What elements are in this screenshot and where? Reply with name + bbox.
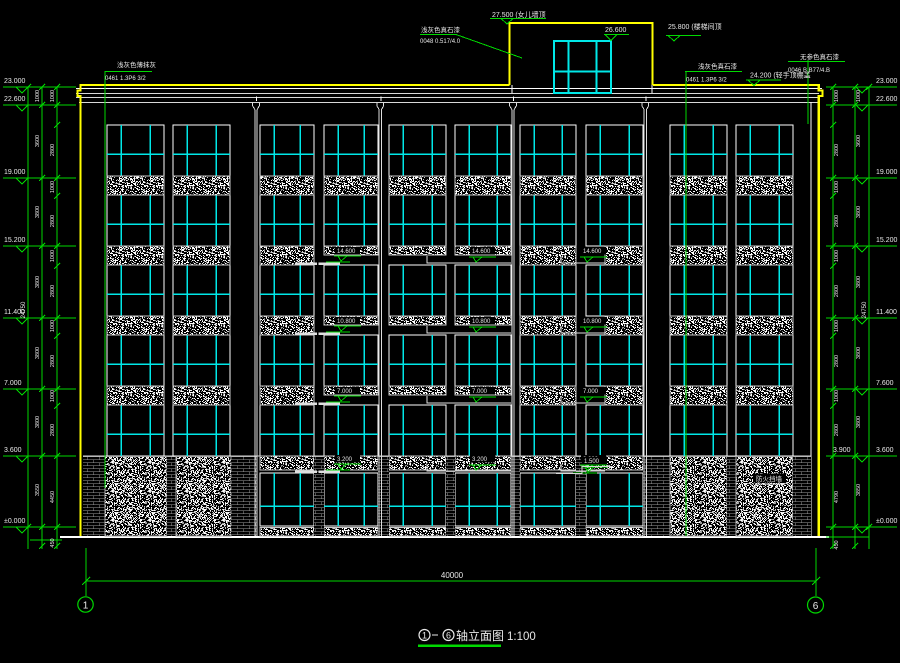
svg-text:6: 6 bbox=[446, 631, 451, 641]
svg-text:24750: 24750 bbox=[862, 301, 868, 318]
svg-text:15.200: 15.200 bbox=[876, 237, 898, 244]
svg-text:1000: 1000 bbox=[834, 90, 840, 102]
svg-text:11.400: 11.400 bbox=[876, 309, 897, 316]
svg-text:1000: 1000 bbox=[834, 181, 840, 193]
svg-text:25.800 (楼梯间顶: 25.800 (楼梯间顶 bbox=[668, 22, 722, 31]
svg-text:3600: 3600 bbox=[856, 135, 862, 147]
svg-text:14.600: 14.600 bbox=[472, 249, 491, 255]
svg-text:3800: 3800 bbox=[35, 206, 41, 218]
svg-text:1000: 1000 bbox=[50, 390, 56, 402]
svg-text:6: 6 bbox=[813, 601, 819, 612]
svg-text:24750: 24750 bbox=[21, 301, 27, 318]
svg-text:15.200: 15.200 bbox=[4, 237, 26, 244]
svg-text:450: 450 bbox=[834, 540, 840, 549]
svg-text:26.600: 26.600 bbox=[605, 27, 627, 34]
svg-text:3850: 3850 bbox=[856, 484, 862, 496]
svg-text:2800: 2800 bbox=[834, 215, 840, 227]
svg-text:3800: 3800 bbox=[35, 276, 41, 288]
svg-text:1000: 1000 bbox=[834, 390, 840, 402]
svg-text:1: 1 bbox=[83, 601, 89, 612]
svg-text:1000: 1000 bbox=[50, 250, 56, 262]
svg-text:1: 1 bbox=[422, 631, 427, 641]
svg-text:24.200 (轻手顶棚盖: 24.200 (轻手顶棚盖 bbox=[750, 71, 811, 80]
svg-text:2800: 2800 bbox=[50, 215, 56, 227]
svg-text:23.000: 23.000 bbox=[4, 78, 26, 85]
svg-text:7.000: 7.000 bbox=[337, 389, 353, 395]
svg-text:无参色真石漆: 无参色真石漆 bbox=[800, 52, 840, 61]
svg-text:2800: 2800 bbox=[50, 144, 56, 156]
svg-text:3.600: 3.600 bbox=[4, 447, 22, 454]
svg-text:2800: 2800 bbox=[834, 144, 840, 156]
svg-text:2800: 2800 bbox=[834, 355, 840, 367]
svg-text:3800: 3800 bbox=[35, 416, 41, 428]
svg-text:1.500: 1.500 bbox=[584, 459, 600, 465]
svg-text:0048 0.517/4.0: 0048 0.517/4.0 bbox=[420, 39, 461, 45]
svg-text:3.600: 3.600 bbox=[876, 447, 894, 454]
svg-text:7.000: 7.000 bbox=[583, 389, 599, 395]
svg-text:3800: 3800 bbox=[856, 206, 862, 218]
svg-text:10.800: 10.800 bbox=[337, 319, 356, 325]
svg-text:1000: 1000 bbox=[856, 90, 862, 102]
svg-text:450: 450 bbox=[50, 538, 56, 547]
svg-text:1000: 1000 bbox=[35, 90, 41, 102]
svg-text:2800: 2800 bbox=[834, 424, 840, 436]
svg-text:浅灰色薄抹灰: 浅灰色薄抹灰 bbox=[117, 60, 157, 69]
svg-text:3.200: 3.200 bbox=[337, 457, 353, 463]
svg-text:2800: 2800 bbox=[50, 355, 56, 367]
svg-text:40000: 40000 bbox=[441, 571, 464, 580]
svg-text:2800: 2800 bbox=[834, 285, 840, 297]
svg-text:3800: 3800 bbox=[856, 347, 862, 359]
svg-text:3800: 3800 bbox=[856, 276, 862, 288]
svg-text:1000: 1000 bbox=[834, 250, 840, 262]
svg-text:1000: 1000 bbox=[50, 181, 56, 193]
svg-text:7.000: 7.000 bbox=[4, 380, 22, 387]
svg-text:22.600: 22.600 bbox=[876, 96, 898, 103]
svg-text:2800: 2800 bbox=[50, 285, 56, 297]
svg-text:0461 1.3P6 3/2: 0461 1.3P6 3/2 bbox=[105, 76, 146, 82]
svg-text:浅灰色真石漆: 浅灰色真石漆 bbox=[698, 62, 738, 71]
svg-text:19.000: 19.000 bbox=[876, 169, 898, 176]
svg-text:3550: 3550 bbox=[35, 484, 41, 496]
svg-text:浅灰色真石漆: 浅灰色真石漆 bbox=[421, 25, 461, 34]
svg-text:1000: 1000 bbox=[50, 320, 56, 332]
svg-text:19.000: 19.000 bbox=[4, 169, 26, 176]
svg-text:14.600: 14.600 bbox=[583, 249, 602, 255]
svg-text:±0.000: ±0.000 bbox=[4, 518, 25, 525]
svg-text:1:100: 1:100 bbox=[507, 631, 536, 643]
svg-text:4790: 4790 bbox=[834, 491, 840, 503]
svg-text:3600: 3600 bbox=[35, 135, 41, 147]
svg-text:27.500 (女儿墙顶: 27.500 (女儿墙顶 bbox=[492, 10, 546, 19]
svg-text:防火挡墙: 防火挡墙 bbox=[756, 474, 783, 483]
svg-text:3800: 3800 bbox=[35, 347, 41, 359]
svg-text:14.600: 14.600 bbox=[337, 249, 356, 255]
svg-text:1000: 1000 bbox=[50, 90, 56, 102]
svg-text:1000: 1000 bbox=[834, 320, 840, 332]
svg-text:±0.000: ±0.000 bbox=[876, 518, 897, 525]
svg-text:0461 1.3P6 3/2: 0461 1.3P6 3/2 bbox=[686, 78, 727, 84]
svg-text:7.600: 7.600 bbox=[876, 380, 894, 387]
svg-text:10.800: 10.800 bbox=[472, 319, 491, 325]
svg-text:7.000: 7.000 bbox=[472, 389, 488, 395]
svg-text:3.200: 3.200 bbox=[472, 457, 488, 463]
svg-text:23.000: 23.000 bbox=[876, 78, 898, 85]
svg-text:10.800: 10.800 bbox=[583, 319, 602, 325]
svg-text:2800: 2800 bbox=[50, 424, 56, 436]
svg-text:22.600: 22.600 bbox=[4, 96, 26, 103]
svg-text:4450: 4450 bbox=[50, 491, 56, 503]
svg-text:轴立面图: 轴立面图 bbox=[456, 628, 504, 643]
svg-text:3800: 3800 bbox=[856, 416, 862, 428]
